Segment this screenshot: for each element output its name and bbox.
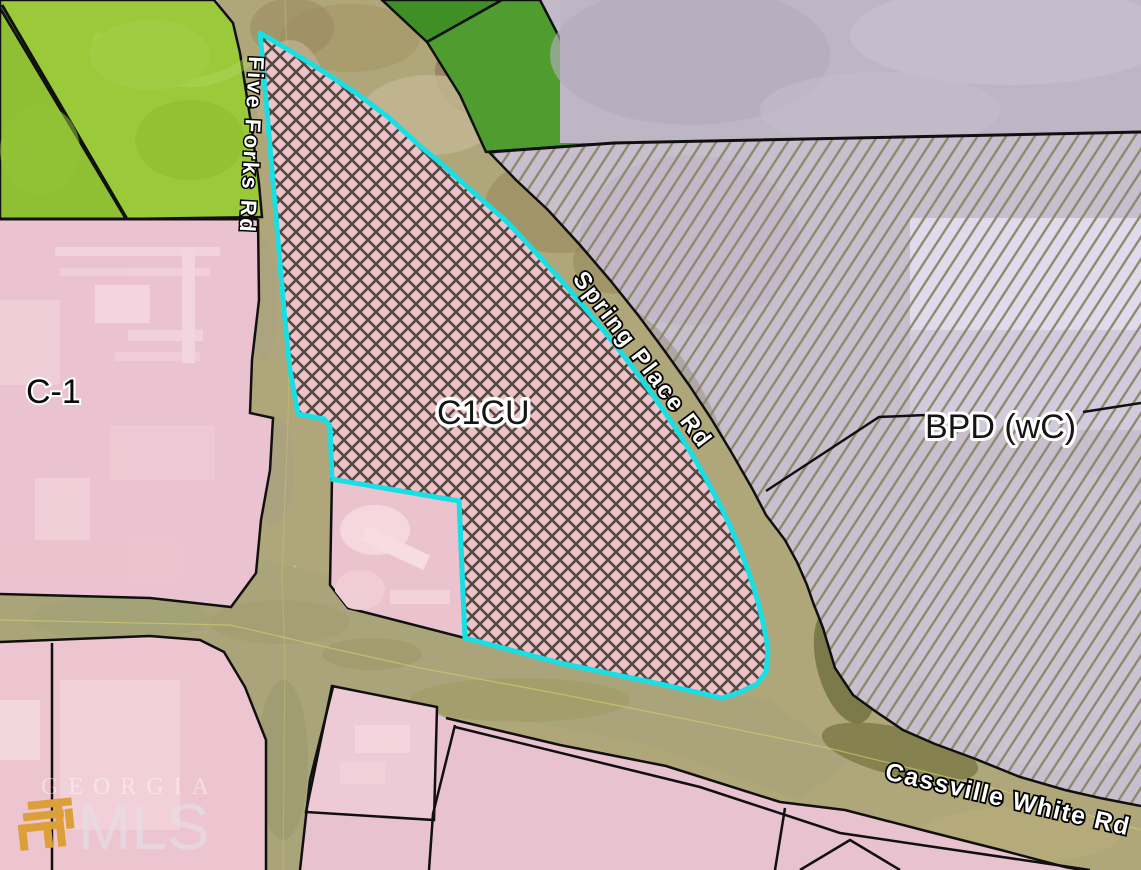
svg-text:MLS: MLS	[78, 791, 210, 863]
svg-text:C1CU: C1CU	[437, 394, 530, 432]
svg-text:BPD (wC): BPD (wC)	[925, 408, 1076, 446]
svg-text:C-1: C-1	[26, 373, 81, 411]
